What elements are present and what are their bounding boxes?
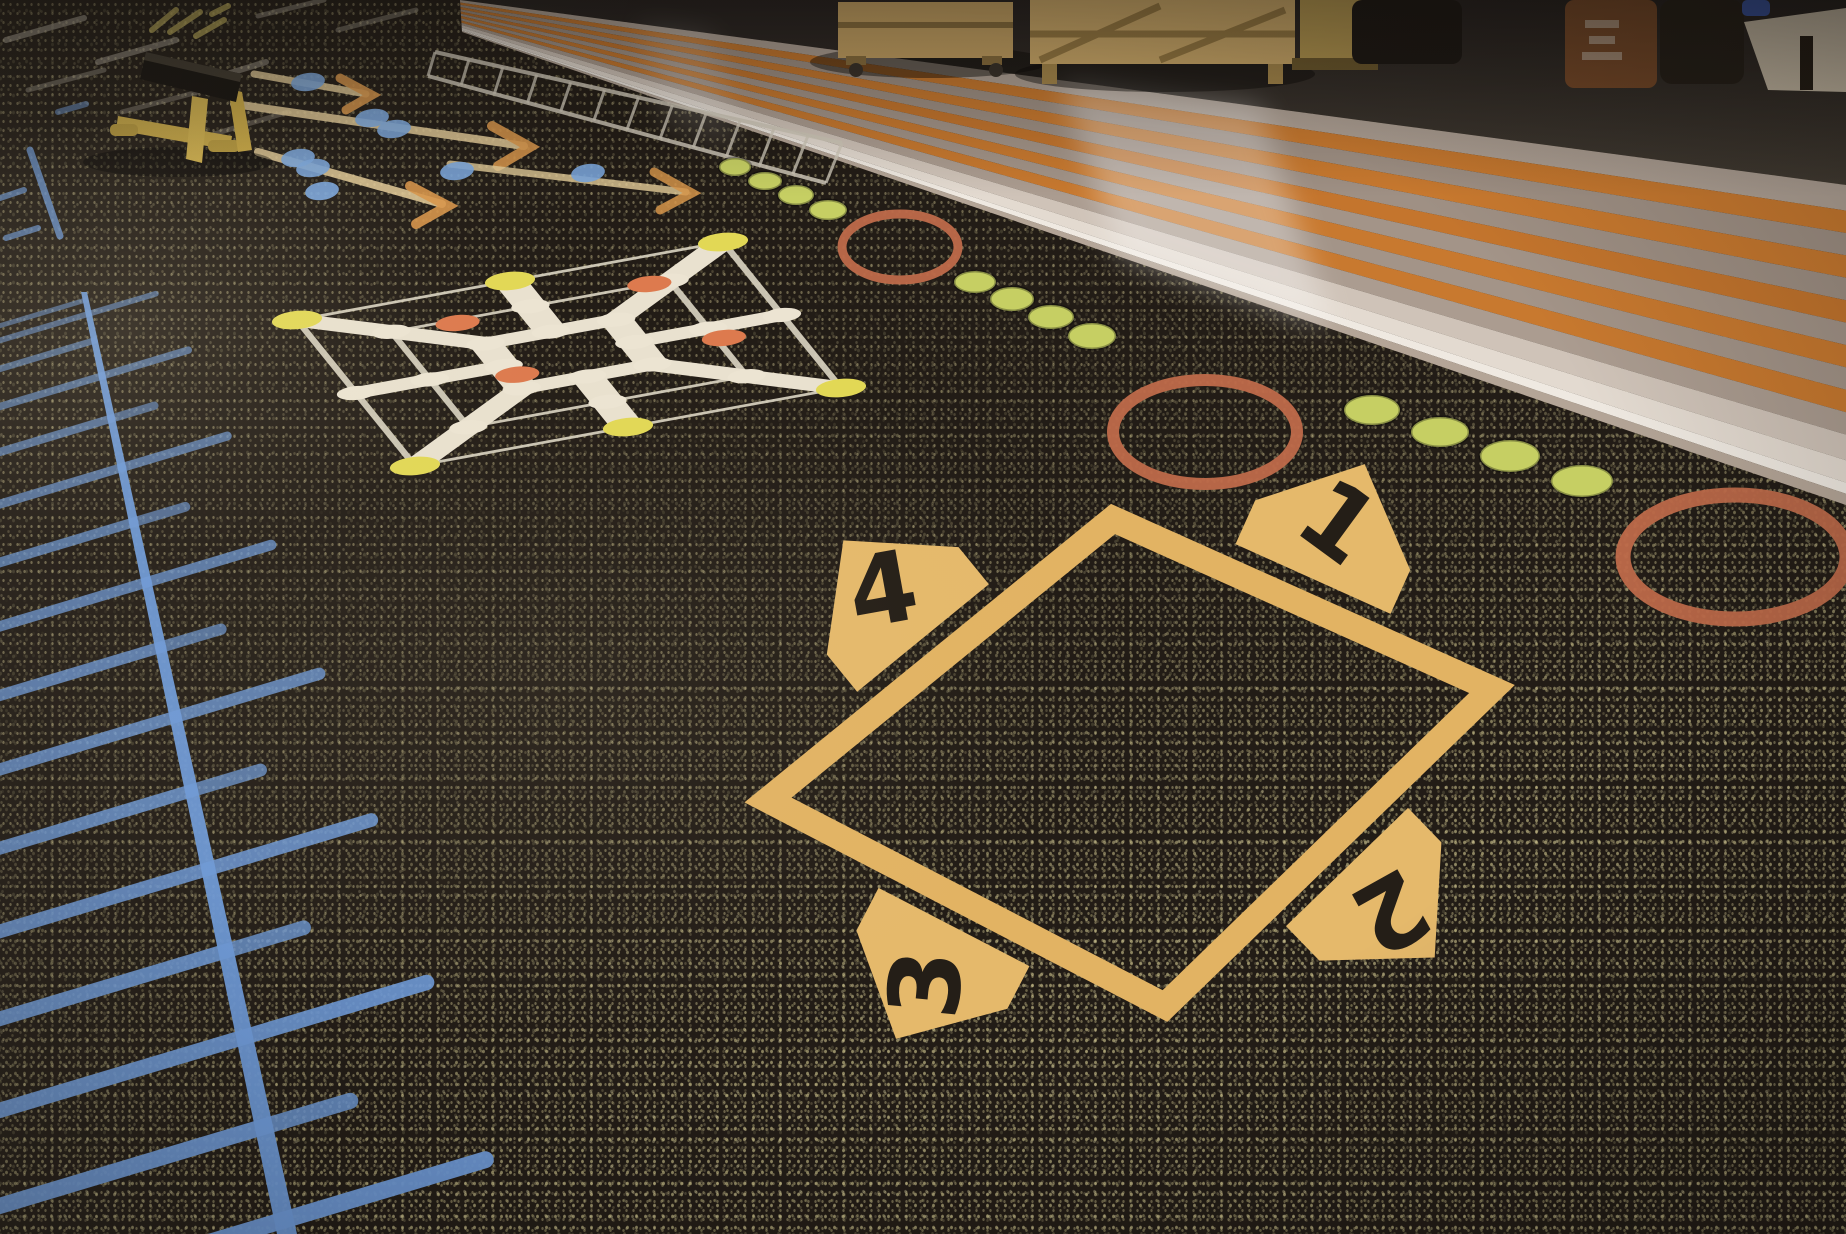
ladder-rung [561, 82, 571, 111]
plyo-box-slat [838, 22, 1013, 28]
ruler-tick-right [89, 294, 156, 314]
bench-foot [208, 140, 240, 152]
ladder-rung [627, 98, 639, 130]
table-leg [1800, 36, 1813, 90]
bench-foot [110, 124, 138, 136]
ruler-tick-left [0, 647, 161, 706]
faded-white-dash [258, 0, 324, 16]
board-middle-square [391, 281, 746, 427]
orange-ring [1113, 380, 1297, 484]
faded-blue-dash [30, 150, 60, 236]
faded-blue-dash [58, 104, 86, 112]
ladder-rung [494, 67, 503, 94]
floor-markings-canvas: 4 1 3 2 [0, 0, 1846, 1234]
green-dot [1068, 323, 1116, 349]
ruler-tick-right-short [192, 770, 261, 791]
blue-foot-dot [290, 71, 326, 94]
ladder-rung [594, 90, 605, 121]
ruler-tick-right-short [134, 507, 186, 522]
ruler-tick-left [0, 300, 86, 327]
ruler-tick-right-short [226, 928, 304, 951]
measuring-ruler [0, 292, 485, 1234]
dark-cylinder [1660, 0, 1744, 84]
green-dot [954, 271, 996, 293]
faded-white-dash [122, 92, 198, 112]
green-dot [990, 287, 1034, 311]
ruler-tick-left [0, 468, 122, 515]
dark-equipment [1352, 0, 1462, 64]
ruler-tick-right-short [161, 629, 221, 647]
orange-ring [1623, 495, 1846, 619]
faded-white-dash [28, 70, 104, 90]
plyo-box-foot [982, 56, 1002, 65]
faded-white-dash [214, 112, 288, 134]
ladder-rung [428, 52, 435, 76]
orange-ring [842, 214, 958, 280]
blue-object [1742, 0, 1770, 16]
ruler-tick-left [0, 791, 192, 857]
gym-floor-photo: 4 1 3 2 [0, 0, 1846, 1234]
green-dot [1551, 465, 1613, 497]
ruler-tick-right [102, 350, 188, 376]
ruler-tick-left [0, 1037, 245, 1115]
green-dot [778, 185, 814, 205]
ruler-tick-left [0, 340, 94, 375]
green-dot [809, 200, 847, 220]
green-dot [1028, 305, 1074, 329]
ruler-tick-right-short [111, 406, 154, 419]
bench-shadow [83, 147, 273, 177]
ruler-tick-left [0, 582, 147, 637]
arrow-tail [450, 164, 686, 192]
ruler-tick-left [0, 1127, 264, 1209]
box-wheel [849, 63, 863, 77]
faded-blue-dash [0, 190, 24, 198]
ruler-tick-right [245, 982, 427, 1037]
ruler-tick-left [0, 717, 176, 780]
plyo-box-leg [1268, 64, 1283, 84]
ruler-tick-right-short [264, 1101, 350, 1127]
ruler-tick-left [0, 869, 208, 939]
green-dot [1480, 440, 1540, 472]
ruler-tick-left [0, 951, 226, 1025]
ruler-tick-left [0, 376, 102, 415]
box-wheel [989, 63, 1003, 77]
morris-game-board [266, 229, 872, 478]
board-outer-square [297, 242, 841, 466]
ruler-spine [81, 292, 297, 1234]
green-dot [748, 172, 782, 190]
green-dot [1344, 395, 1400, 425]
ruler-tick-left [0, 1220, 284, 1234]
quadrant-hop-square: 4 1 3 2 [768, 429, 1496, 1078]
quadrant-number-3: 3 [867, 945, 987, 1024]
ruler-tick-right [176, 674, 320, 717]
green-dot [719, 158, 751, 176]
green-dot [1411, 417, 1469, 447]
ruler-tick-right [122, 436, 227, 468]
ruler-tick-left [0, 522, 134, 573]
ladder-rung [461, 60, 469, 85]
faded-blue-dash [6, 228, 38, 238]
ruler-tick-left [0, 419, 111, 462]
plyo-box [838, 2, 1013, 58]
blue-foot-dot [304, 180, 340, 203]
ruler-tick-right [147, 545, 272, 582]
faded-white-dash [6, 18, 84, 40]
faded-yellow-marking [152, 6, 228, 36]
ruler-tick-right [284, 1160, 485, 1220]
ruler-tick-left [0, 314, 89, 345]
ruler-tick-right [208, 820, 371, 869]
ladder-rung [528, 75, 537, 103]
plyo-box-leg [1042, 64, 1057, 84]
arrow-head-icon [410, 186, 448, 224]
faded-white-dash [338, 10, 416, 30]
